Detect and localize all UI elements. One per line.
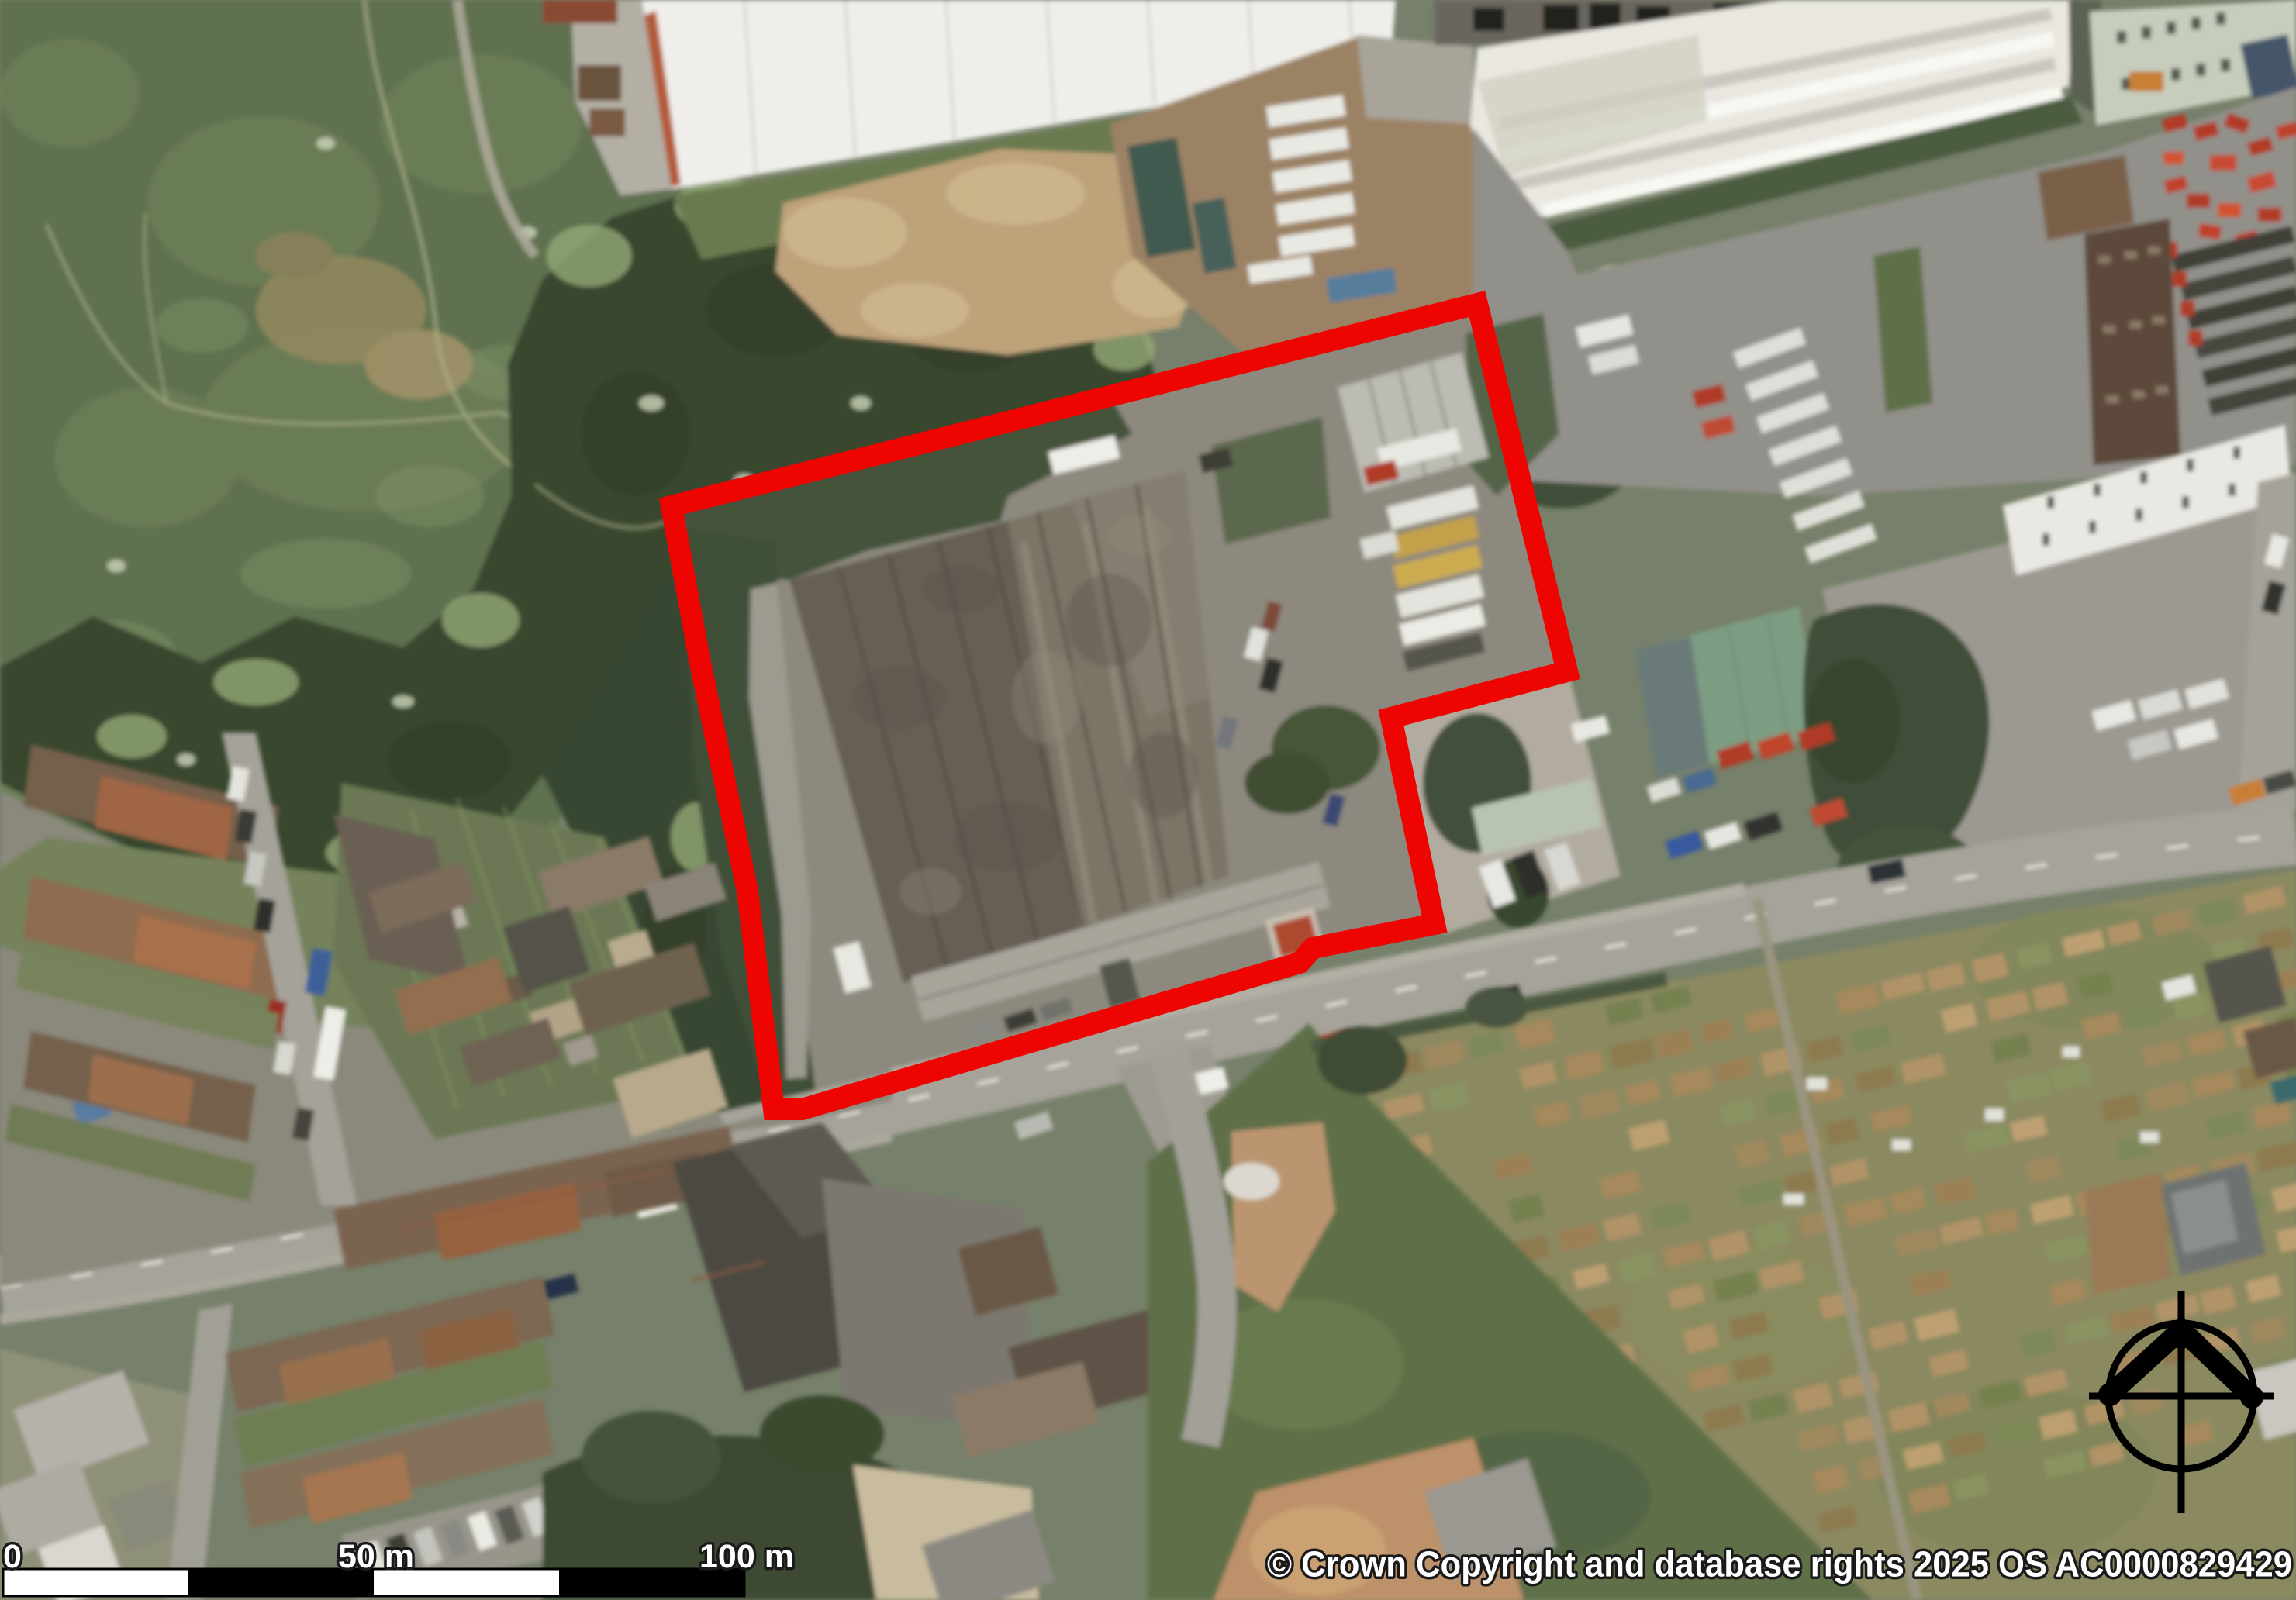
svg-text:50 m: 50 m	[338, 1538, 414, 1575]
svg-text:100 m: 100 m	[699, 1538, 794, 1575]
svg-text:0: 0	[3, 1538, 22, 1575]
svg-text:© Crown Copyright and database: © Crown Copyright and database rights 20…	[1267, 1544, 2292, 1584]
